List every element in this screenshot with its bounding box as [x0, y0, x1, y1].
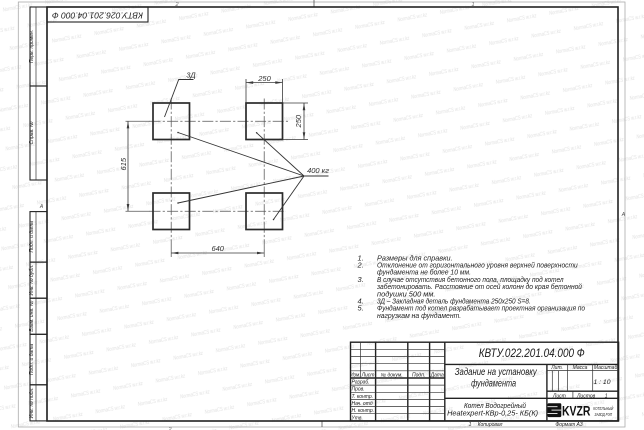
svg-text:3.: 3.	[358, 275, 364, 284]
svg-text:Разраб.: Разраб.	[352, 380, 370, 386]
svg-text:Взам. инв. №: Взам. инв. №	[29, 300, 35, 332]
svg-text:КОТЕЛЬНЫЙ: КОТЕЛЬНЫЙ	[593, 406, 614, 411]
svg-text:1: 1	[469, 422, 472, 428]
svg-text:Справ. №: Справ. №	[29, 121, 35, 144]
svg-text:КВТУ.026.201.04.000 Ф: КВТУ.026.201.04.000 Ф	[52, 10, 143, 20]
svg-text:Дата: Дата	[430, 372, 444, 378]
svg-text:615: 615	[119, 157, 128, 170]
svg-text:Масштаб: Масштаб	[594, 365, 618, 371]
svg-text:Нач. отд: Нач. отд	[352, 401, 373, 407]
svg-text:фундамента: фундамента	[471, 378, 516, 389]
svg-text:Подп.: Подп.	[412, 372, 425, 378]
svg-text:Т. контр.: Т. контр.	[352, 394, 374, 400]
svg-text:А: А	[39, 204, 44, 210]
svg-text:нагрузкам на фундамент.: нагрузкам на фундамент.	[377, 311, 461, 320]
svg-text:Задание на установку: Задание на установку	[455, 367, 538, 378]
svg-text:Листов: Листов	[576, 393, 596, 399]
svg-text:Копировал: Копировал	[478, 422, 503, 428]
svg-text:640: 640	[211, 244, 224, 253]
svg-text:250: 250	[257, 74, 271, 83]
svg-text:КВТУ.022.201.04.000 Ф: КВТУ.022.201.04.000 Ф	[479, 348, 585, 360]
svg-text:Масса: Масса	[573, 365, 588, 371]
svg-text:ЗАВОД РЭП: ЗАВОД РЭП	[595, 412, 613, 417]
svg-text:Лист: Лист	[552, 393, 566, 399]
svg-text:250: 250	[294, 114, 303, 128]
svg-text:Heatexpert-КВр-0,25- КБ(К): Heatexpert-КВр-0,25- КБ(К)	[447, 408, 539, 417]
svg-text:Н. контр.: Н. контр.	[352, 408, 375, 414]
svg-text:Утв.: Утв.	[352, 415, 363, 421]
svg-text:Инв. № дубл.: Инв. № дубл.	[29, 265, 35, 296]
svg-text:№ докум.: № докум.	[381, 372, 403, 378]
svg-text:Изм.: Изм.	[350, 372, 361, 378]
svg-text:1: 1	[605, 393, 608, 399]
svg-text:А: А	[621, 212, 626, 218]
svg-text:Подп. и дата: Подп. и дата	[29, 221, 35, 253]
svg-text:Лист: Лист	[361, 372, 375, 378]
svg-text:Лит.: Лит.	[550, 365, 563, 371]
svg-text:Перв. примен.: Перв. примен.	[29, 30, 35, 63]
svg-text:3Д: 3Д	[186, 71, 196, 80]
svg-text:400 кг: 400 кг	[307, 166, 329, 175]
svg-text:Подп. и дата: Подп. и дата	[29, 344, 35, 376]
svg-text:2.: 2.	[357, 261, 364, 270]
svg-text:Инв. № подл.: Инв. № подл.	[29, 387, 35, 418]
svg-text:Пров.: Пров.	[352, 387, 365, 393]
svg-text:1 : 10: 1 : 10	[593, 379, 610, 386]
svg-text:Формат А3: Формат А3	[555, 422, 583, 428]
svg-text:KVZR: KVZR	[562, 402, 591, 418]
svg-text:5.: 5.	[358, 304, 364, 313]
